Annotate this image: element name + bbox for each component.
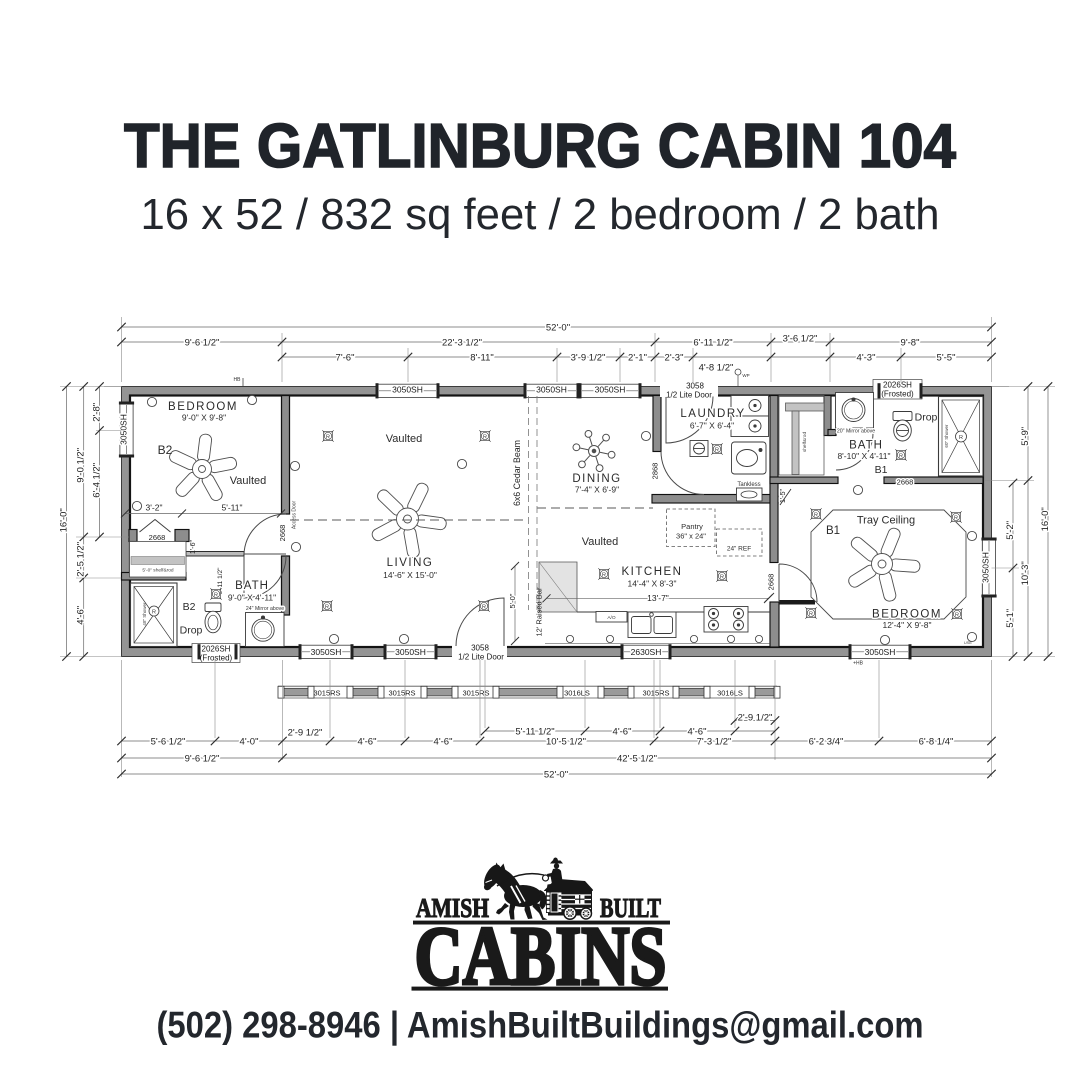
svg-text:5'-1": 5'-1" [1005, 609, 1016, 628]
svg-text:10'-5 1/2": 10'-5 1/2" [546, 736, 586, 747]
svg-text:B2: B2 [158, 443, 173, 457]
svg-text:6'-7" X 6'-4": 6'-7" X 6'-4" [690, 421, 734, 431]
svg-text:4'-8 1/2": 4'-8 1/2" [699, 362, 734, 373]
svg-text:9'-6 1/2": 9'-6 1/2" [185, 753, 220, 764]
svg-text:3016LS: 3016LS [717, 688, 743, 697]
svg-text:16'-0": 16'-0" [1040, 507, 1051, 531]
svg-text:4'-0": 4'-0" [240, 736, 259, 747]
svg-text:3050SH: 3050SH [395, 647, 426, 657]
svg-text:Access Door: Access Door [292, 500, 298, 529]
svg-text:3058: 3058 [471, 644, 489, 653]
svg-text:7'-6": 7'-6" [336, 352, 355, 363]
svg-text:WP: WP [742, 373, 749, 378]
svg-text:BEDROOM: BEDROOM [872, 609, 942, 621]
svg-text:5'-11": 5'-11" [221, 503, 242, 513]
svg-text:5'-0": 5'-0" [508, 593, 517, 608]
svg-text:9'-0" X 9'-8": 9'-0" X 9'-8" [182, 413, 226, 423]
svg-text:B1: B1 [826, 525, 840, 537]
svg-text:USE: USE [964, 640, 973, 645]
svg-text:2668: 2668 [897, 478, 914, 487]
svg-text:2668: 2668 [278, 525, 287, 542]
svg-text:1/2 Lite Door: 1/2 Lite Door [666, 391, 712, 400]
svg-text:Drop: Drop [180, 625, 203, 637]
svg-text:Vaulted: Vaulted [386, 433, 423, 445]
svg-text:R: R [959, 435, 963, 441]
svg-text:R: R [214, 592, 218, 598]
svg-text:2'-9 1/2": 2'-9 1/2" [288, 727, 323, 738]
svg-text:R: R [602, 572, 606, 578]
svg-text:BATH: BATH [849, 440, 883, 452]
svg-text:3050SH: 3050SH [311, 647, 342, 657]
svg-text:8'-10" X 4'-11": 8'-10" X 4'-11" [837, 451, 890, 461]
svg-text:R: R [483, 434, 487, 440]
svg-text:R: R [152, 609, 156, 615]
svg-text:BATH: BATH [235, 580, 269, 592]
svg-text:5'-5": 5'-5" [937, 352, 956, 363]
svg-text:3'-9 1/2": 3'-9 1/2" [571, 352, 606, 363]
svg-text:5'-0" shelf&rod: 5'-0" shelf&rod [142, 568, 173, 574]
svg-text:3015RS: 3015RS [313, 688, 340, 697]
svg-text:52'-0": 52'-0" [546, 322, 570, 333]
svg-text:R: R [325, 604, 329, 610]
svg-text:3015RS: 3015RS [388, 688, 415, 697]
svg-text:3050SH: 3050SH [865, 647, 896, 657]
svg-text:HB: HB [234, 377, 242, 383]
svg-text:5'-2": 5'-2" [1005, 521, 1016, 540]
svg-text:R: R [899, 453, 903, 459]
svg-text:+HB: +HB [853, 661, 864, 667]
svg-text:(Frosted): (Frosted) [200, 654, 233, 663]
svg-text:LIVING: LIVING [387, 557, 434, 569]
svg-text:R: R [715, 447, 719, 453]
svg-text:R: R [814, 512, 818, 518]
svg-text:7'-3 1/2": 7'-3 1/2" [697, 736, 732, 747]
svg-text:3015RS: 3015RS [462, 688, 489, 697]
svg-text:6'-4 1/2": 6'-4 1/2" [92, 463, 103, 498]
svg-text:4'-6": 4'-6" [358, 736, 377, 747]
svg-text:Vaulted: Vaulted [582, 536, 619, 548]
svg-text:4'-6": 4'-6" [76, 606, 87, 625]
svg-text:22'-3 1/2": 22'-3 1/2" [442, 337, 482, 348]
svg-text:2026SH: 2026SH [883, 381, 912, 390]
svg-text:12'-4" X 9'-8": 12'-4" X 9'-8" [883, 620, 932, 630]
svg-text:Tankless: Tankless [737, 482, 760, 488]
svg-text:14'-4" X 8'-3": 14'-4" X 8'-3" [628, 579, 677, 589]
svg-text:3015RS: 3015RS [642, 688, 669, 697]
svg-text:shelf&rod: shelf&rod [802, 432, 808, 453]
svg-text:6'-8 1/4": 6'-8 1/4" [919, 736, 954, 747]
svg-text:Tray Ceiling: Tray Ceiling [857, 515, 915, 527]
svg-text:4'-6": 4'-6" [434, 736, 453, 747]
svg-text:(502) 298-8946 | AmishBuiltBui: (502) 298-8946 | AmishBuiltBuildings@gma… [157, 1005, 924, 1047]
svg-text:3'-2": 3'-2" [146, 503, 163, 513]
svg-text:8'-11": 8'-11" [470, 352, 494, 363]
svg-text:20" Mirror above: 20" Mirror above [837, 429, 875, 435]
svg-text:36" x 24": 36" x 24" [676, 532, 706, 541]
svg-text:24" REF: 24" REF [727, 546, 751, 553]
svg-text:Drop: Drop [915, 412, 938, 424]
svg-text:24" Mirror above: 24" Mirror above [246, 606, 284, 612]
svg-text:16 x 52 / 832 sq feet / 2 bedr: 16 x 52 / 832 sq feet / 2 bedroom / 2 ba… [141, 190, 940, 239]
svg-text:DINING: DINING [572, 473, 621, 485]
svg-text:R: R [955, 612, 959, 618]
svg-text:5'-6 1/2": 5'-6 1/2" [151, 736, 186, 747]
svg-text:2026SH: 2026SH [202, 645, 231, 654]
svg-text:A/O: A/O [607, 615, 616, 621]
svg-text:B1: B1 [875, 464, 888, 476]
svg-text:R: R [326, 434, 330, 440]
svg-text:2'-8": 2'-8" [92, 403, 103, 422]
svg-text:42'-5 1/2": 42'-5 1/2" [617, 753, 657, 764]
svg-text:3050SH: 3050SH [119, 414, 129, 445]
svg-text:9'-0" X 4'-11": 9'-0" X 4'-11" [228, 593, 276, 603]
svg-text:BEDROOM: BEDROOM [168, 401, 238, 413]
svg-text:3'-6 1/2": 3'-6 1/2" [783, 333, 818, 344]
svg-text:7'-4" X 6'-9": 7'-4" X 6'-9" [575, 485, 619, 495]
svg-text:2'-3": 2'-3" [665, 352, 684, 363]
svg-text:R: R [482, 604, 486, 610]
svg-text:Vaulted: Vaulted [230, 475, 267, 487]
svg-text:4'-6": 4'-6" [613, 726, 632, 737]
svg-text:6'-11 1/2": 6'-11 1/2" [693, 337, 732, 348]
svg-text:R: R [720, 574, 724, 580]
svg-text:1/2 Lite Door: 1/2 Lite Door [458, 653, 504, 662]
svg-text:2'-5 1/2": 2'-5 1/2" [76, 542, 87, 577]
svg-text:LAUNDRY: LAUNDRY [680, 408, 745, 420]
svg-text:16'-0": 16'-0" [59, 508, 70, 532]
svg-text:52'-0": 52'-0" [544, 769, 568, 780]
svg-text:2630SH: 2630SH [631, 647, 662, 657]
svg-text:5'-9": 5'-9" [1020, 427, 1031, 446]
svg-text:2668: 2668 [149, 533, 166, 542]
svg-text:2868: 2868 [651, 463, 660, 480]
svg-text:12' Raised Bar: 12' Raised Bar [535, 587, 544, 636]
svg-text:1'-6": 1'-6" [190, 540, 197, 554]
svg-text:9'-8": 9'-8" [901, 337, 920, 348]
svg-text:14'-6" X 15'-0": 14'-6" X 15'-0" [383, 570, 437, 580]
svg-text:3050SH: 3050SH [981, 552, 991, 583]
svg-text:60" Shower: 60" Shower [944, 424, 949, 448]
svg-text:R: R [954, 515, 958, 521]
svg-text:13'-7": 13'-7" [647, 593, 669, 603]
svg-text:(Frosted): (Frosted) [881, 390, 914, 399]
svg-text:R: R [809, 611, 813, 617]
svg-text:9'-6 1/2": 9'-6 1/2" [185, 337, 220, 348]
svg-text:3016LS: 3016LS [564, 688, 590, 697]
svg-text:KITCHEN: KITCHEN [622, 566, 683, 578]
svg-text:B2: B2 [183, 601, 196, 613]
svg-text:4'-3": 4'-3" [857, 352, 876, 363]
svg-text:3050SH: 3050SH [392, 385, 423, 395]
svg-text:6x6 Cedar Beam: 6x6 Cedar Beam [512, 440, 522, 506]
svg-text:9'-0 1/2": 9'-0 1/2" [76, 448, 87, 483]
svg-text:3058: 3058 [686, 382, 704, 391]
svg-text:6'-2 3/4": 6'-2 3/4" [809, 736, 844, 747]
svg-text:3050SH: 3050SH [536, 385, 567, 395]
svg-text:Pantry: Pantry [681, 522, 703, 531]
svg-text:3050SH: 3050SH [595, 385, 626, 395]
svg-text:2'-1": 2'-1" [628, 352, 647, 363]
svg-text:10'-3": 10'-3" [1020, 561, 1031, 585]
svg-text:48" Shower: 48" Shower [142, 602, 147, 626]
svg-text:2'-9 1/2": 2'-9 1/2" [738, 712, 773, 723]
svg-text:2668: 2668 [767, 574, 776, 591]
svg-text:THE GATLINBURG CABIN 104: THE GATLINBURG CABIN 104 [124, 112, 956, 181]
